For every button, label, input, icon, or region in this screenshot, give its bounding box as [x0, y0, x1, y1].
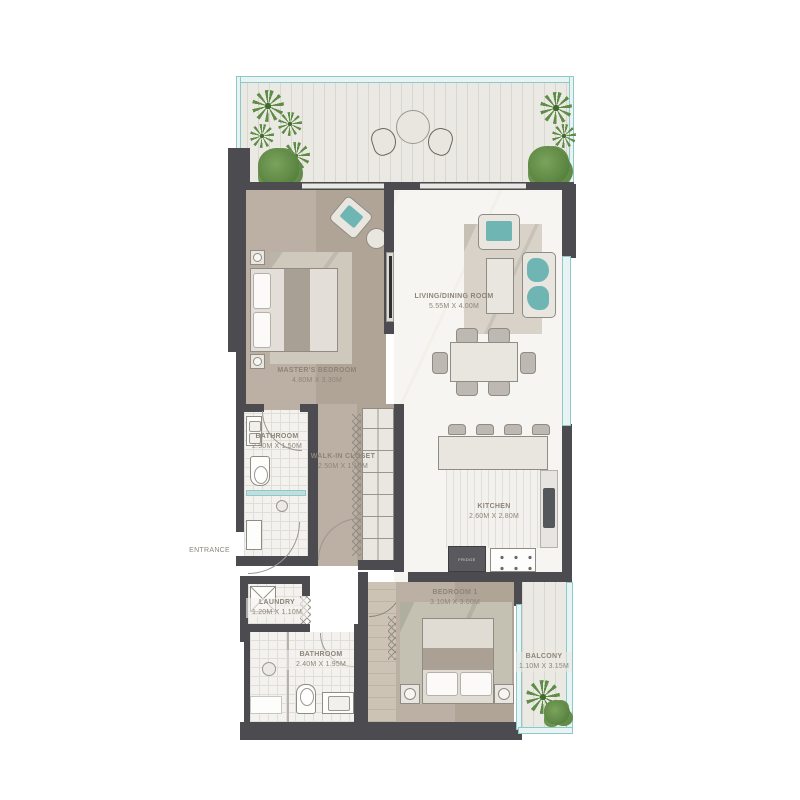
wall: [358, 572, 368, 724]
kitchen-island: [438, 436, 548, 470]
room-dims: 3.10M X 3.00M: [400, 598, 510, 608]
room-label: MASTER'S BEDROOM 4.80M X 3.30M: [272, 366, 362, 386]
sliding-door: [302, 183, 384, 189]
room-label: BALCONY 1.10M X 3.15M: [516, 652, 572, 672]
dining-chair: [432, 352, 448, 374]
shower-tray: [250, 696, 282, 714]
tv-icon: [389, 256, 392, 318]
room-label: KITCHEN 2.60M X 2.80M: [452, 502, 536, 522]
room-label: LAUNDRY 1.20M X 1.10M: [246, 598, 308, 618]
room-dims: 5.55M X 4.00M: [412, 302, 496, 312]
wardrobe: [362, 408, 394, 562]
room-dims: 1.20M X 1.10M: [246, 608, 308, 618]
room-dims: 2.40M X 1.95M: [286, 660, 356, 670]
armchair-cushion: [486, 221, 512, 241]
shower-glass: [287, 632, 289, 722]
bed-pillow: [253, 273, 271, 309]
shrub-plant: [528, 146, 570, 186]
shower-drain: [276, 500, 288, 512]
terrace-table: [396, 110, 430, 144]
terrace-glass-top: [236, 76, 574, 83]
shower-shelf: [246, 490, 306, 496]
bar-stool: [476, 424, 494, 435]
room-name: BATHROOM: [299, 651, 342, 658]
shrub-plant: [544, 700, 570, 725]
dining-chair: [520, 352, 536, 374]
room-label: BATHROOM 2.40M X 1.95M: [286, 650, 356, 670]
room-name: LAUNDRY: [259, 599, 295, 606]
wall: [240, 722, 522, 740]
room-name: KITCHEN: [477, 503, 510, 510]
stove-hob: [490, 548, 536, 572]
wall: [246, 624, 310, 632]
floor-plan: MASTER'S BEDROOM 4.80M X 3.30M LIVING/DI…: [0, 0, 800, 800]
fridge: FRIDGE: [448, 546, 486, 572]
room-dims: 2.60M X 2.80M: [452, 512, 536, 522]
bed-pillow: [253, 312, 271, 348]
room-name: BATHROOM: [255, 433, 298, 440]
kitchen-sink: [543, 488, 555, 528]
lamp-icon: [404, 688, 416, 700]
wall: [246, 576, 310, 584]
sofa-pillow: [527, 258, 549, 282]
palm-plant: [278, 112, 302, 136]
dining-table: [450, 342, 518, 382]
bed-pillow: [460, 672, 492, 696]
sink-basin: [249, 421, 261, 432]
bed-pillow: [426, 672, 458, 696]
bar-stool: [532, 424, 550, 435]
bed-band: [423, 648, 493, 670]
room-name: WALK-IN CLOSET: [311, 453, 375, 460]
room-name: ENTRANCE: [189, 547, 230, 554]
shower-drain: [262, 662, 276, 676]
toilet-bowl: [254, 466, 268, 484]
room-name: BALCONY: [526, 653, 563, 660]
room-name: BEDROOM 1: [432, 589, 477, 596]
balcony-glass-bottom: [518, 727, 573, 734]
palm-plant: [552, 124, 576, 148]
room-label: LIVING/DINING ROOM 5.55M X 4.00M: [412, 292, 496, 312]
bed-runner: [284, 269, 310, 351]
living-window: [562, 256, 571, 426]
sliding-door: [420, 183, 526, 189]
lamp-icon: [498, 688, 510, 700]
dining-chair: [456, 380, 478, 396]
palm-plant: [540, 92, 572, 124]
room-label: WALK-IN CLOSET 2.50M X 1.10M: [310, 452, 376, 472]
room-dims: 2.50M X 1.50M: [246, 442, 308, 452]
wall: [302, 584, 310, 596]
entrance-door-arc: [248, 522, 300, 574]
palm-plant: [250, 124, 274, 148]
room-name: LIVING/DINING ROOM: [415, 293, 494, 300]
wall: [358, 560, 404, 570]
room-dims: 4.80M X 3.30M: [272, 376, 362, 386]
lamp-icon: [253, 357, 262, 366]
bar-stool: [448, 424, 466, 435]
wall: [394, 404, 404, 572]
lamp-icon: [253, 253, 262, 262]
toilet-bowl: [300, 688, 314, 706]
bar-stool: [504, 424, 522, 435]
room-dims: 2.50M X 1.10M: [310, 462, 376, 472]
wall: [236, 404, 264, 412]
room-label: BATHROOM 2.50M X 1.50M: [246, 432, 308, 452]
sofa-pillow: [527, 286, 549, 310]
wall: [308, 404, 318, 566]
room-label: BEDROOM 1 3.10M X 3.00M: [400, 588, 510, 608]
sink-basin: [328, 696, 350, 711]
dining-chair: [488, 380, 510, 396]
entrance-label: ENTRANCE: [182, 546, 230, 556]
room-dims: 1.10M X 3.15M: [516, 662, 572, 672]
room-name: MASTER'S BEDROOM: [277, 367, 356, 374]
wall: [408, 572, 566, 582]
